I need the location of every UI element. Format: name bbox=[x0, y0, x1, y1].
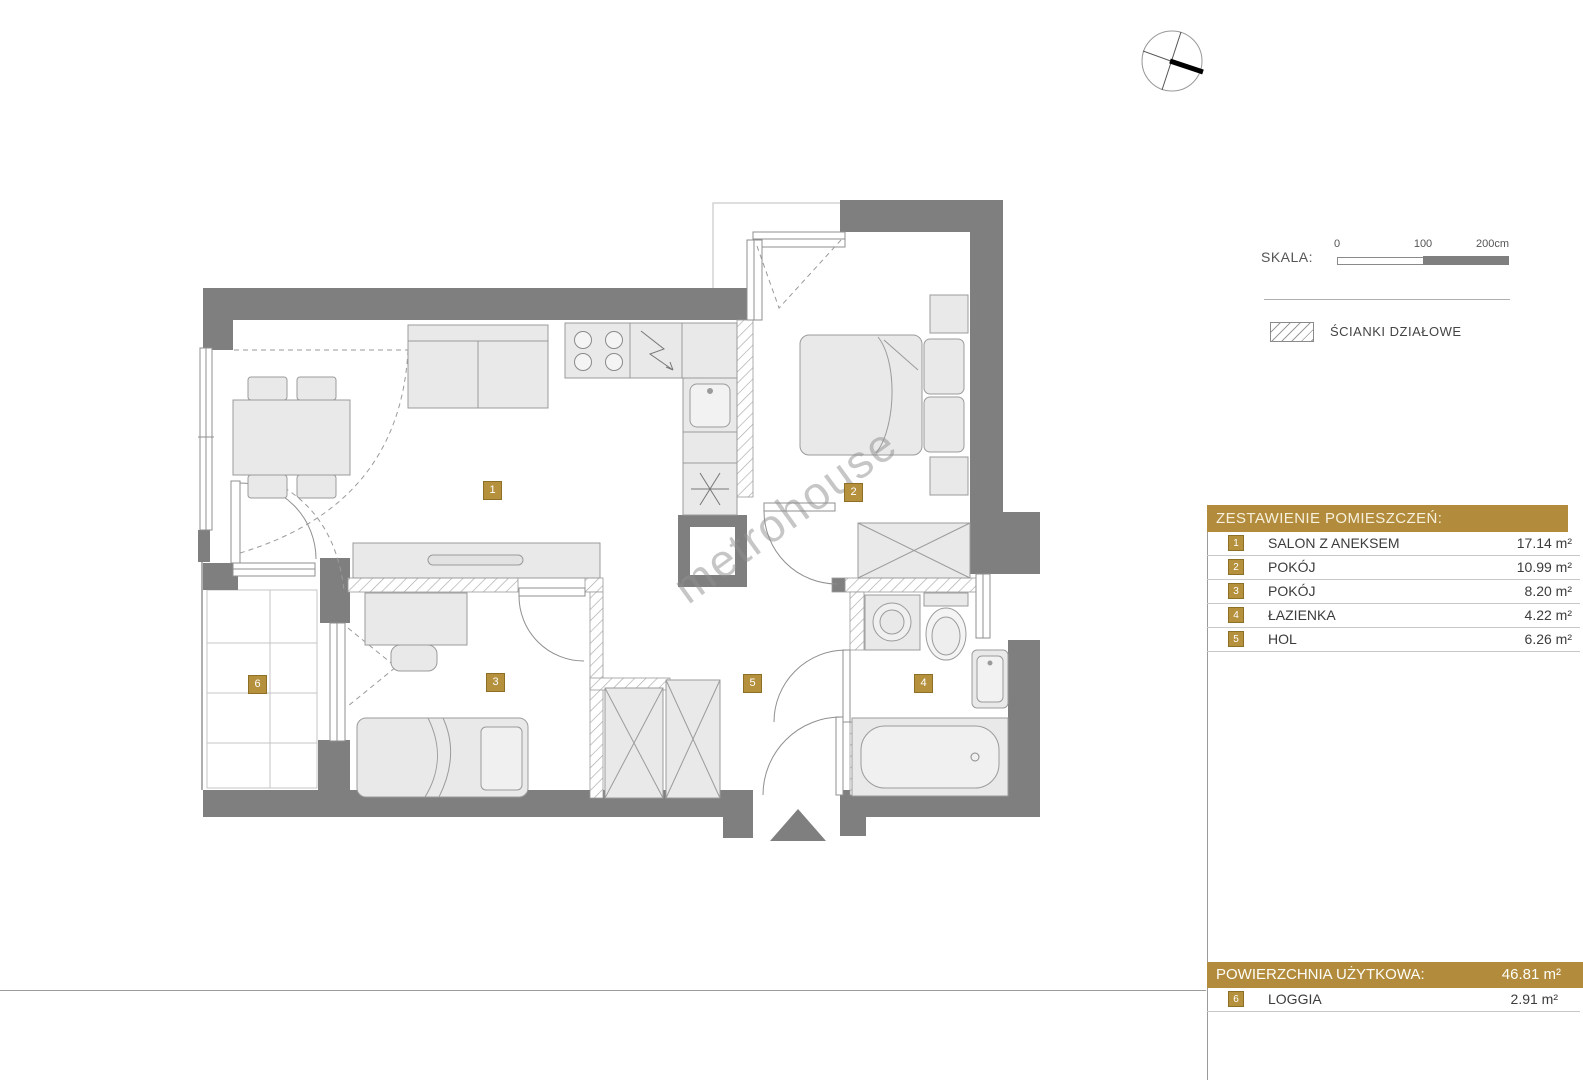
scale-tick-0: 0 bbox=[1334, 238, 1340, 250]
hob bbox=[565, 323, 630, 378]
usable-area-bar: POWIERZCHNIA UŻYTKOWA: 46.81 m² bbox=[1207, 962, 1583, 988]
nightstand bbox=[930, 295, 968, 333]
pillow bbox=[924, 339, 964, 394]
scale-bar-right bbox=[1423, 256, 1509, 265]
desk bbox=[365, 593, 467, 645]
page-bottom-line bbox=[0, 990, 1206, 991]
row-badge: 5 bbox=[1228, 631, 1244, 647]
row-badge: 6 bbox=[1228, 991, 1244, 1007]
toilet-cistern bbox=[924, 593, 968, 606]
scale-ticks: 0 100 200cm bbox=[1337, 238, 1509, 250]
legend-partition-walls: ŚCIANKI DZIAŁOWE bbox=[1330, 324, 1462, 339]
room-badge-5: 5 bbox=[743, 674, 762, 693]
scale-tick-200: 200cm bbox=[1476, 238, 1509, 250]
scale-bar-left bbox=[1337, 257, 1424, 265]
nightstand bbox=[930, 457, 968, 495]
room-badge-6: 6 bbox=[248, 675, 267, 694]
loggia-row: 6 LOGGIA 2.91 m² bbox=[1207, 988, 1580, 1012]
room-area: 6.26 m² bbox=[1525, 631, 1572, 647]
scale-label: SKALA: bbox=[1261, 249, 1313, 265]
room-name: LOGGIA bbox=[1268, 991, 1322, 1007]
chair bbox=[297, 377, 336, 400]
floorplan-page: metrohouse 1 2 3 4 5 6 SKALA: 0 100 200c… bbox=[0, 0, 1583, 1080]
room-area: 2.91 m² bbox=[1511, 991, 1558, 1007]
desk-chair bbox=[391, 645, 437, 671]
room-area: 17.14 m² bbox=[1517, 535, 1572, 551]
rooms-table: 1 SALON Z ANEKSEM 17.14 m² 2 POKÓJ 10.99… bbox=[1207, 532, 1580, 652]
chair bbox=[248, 377, 287, 400]
north-indicator-icon bbox=[1142, 31, 1203, 91]
kitchen-counter bbox=[630, 323, 682, 378]
usable-area-label: POWIERZCHNIA UŻYTKOWA: bbox=[1216, 962, 1425, 988]
scale-bar bbox=[1337, 256, 1509, 265]
partition-wall-hatch-icon bbox=[1270, 322, 1314, 342]
entrance-arrow bbox=[770, 809, 826, 841]
room-name: POKÓJ bbox=[1268, 559, 1315, 575]
room-badge-3: 3 bbox=[486, 673, 505, 692]
room-badge-1: 1 bbox=[483, 481, 502, 500]
room-area: 8.20 m² bbox=[1525, 583, 1572, 599]
rooms-table-title: ZESTAWIENIE POMIESZCZEŃ: bbox=[1207, 505, 1568, 532]
room-name: ŁAZIENKA bbox=[1268, 607, 1336, 623]
scale-tick-100: 100 bbox=[1414, 238, 1432, 250]
room-area: 10.99 m² bbox=[1517, 559, 1572, 575]
divider-line bbox=[1264, 299, 1510, 300]
row-badge: 1 bbox=[1228, 535, 1244, 551]
room-name: SALON Z ANEKSEM bbox=[1268, 535, 1399, 551]
table-row: 2 POKÓJ 10.99 m² bbox=[1207, 556, 1580, 580]
chair bbox=[297, 475, 336, 498]
room-badge-4: 4 bbox=[914, 674, 933, 693]
table-row: 3 POKÓJ 8.20 m² bbox=[1207, 580, 1580, 604]
table-row: 4 ŁAZIENKA 4.22 m² bbox=[1207, 604, 1580, 628]
usable-area-value: 46.81 m² bbox=[1502, 962, 1561, 988]
room-badge-2: 2 bbox=[844, 483, 863, 502]
room-name: HOL bbox=[1268, 631, 1297, 647]
chair bbox=[248, 475, 287, 498]
room-name: POKÓJ bbox=[1268, 583, 1315, 599]
furniture bbox=[233, 295, 1008, 798]
pillow bbox=[924, 397, 964, 452]
table-row: 5 HOL 6.26 m² bbox=[1207, 628, 1580, 652]
row-badge: 3 bbox=[1228, 583, 1244, 599]
row-badge: 4 bbox=[1228, 607, 1244, 623]
row-badge: 2 bbox=[1228, 559, 1244, 575]
pillow bbox=[481, 727, 522, 790]
dining-table bbox=[233, 400, 350, 475]
room-area: 4.22 m² bbox=[1525, 607, 1572, 623]
table-row: 1 SALON Z ANEKSEM 17.14 m² bbox=[1207, 532, 1580, 556]
